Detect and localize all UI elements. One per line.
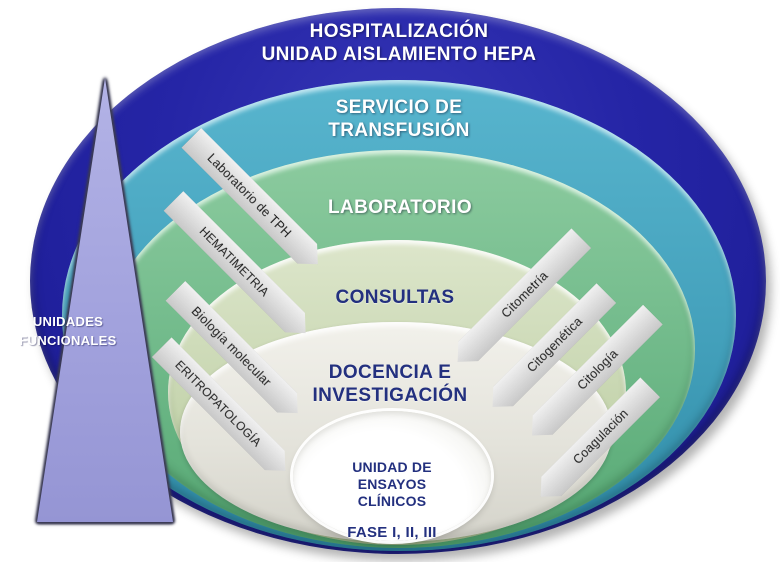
onion-diagram: HOSPITALIZACIÓN UNIDAD AISLAMIENTO HEPA … (0, 0, 780, 562)
label-unidades-line1: UNIDADES (0, 312, 136, 331)
unidades-funcionales-triangle (37, 78, 173, 522)
ring-unidad-ensayos-clinicos (293, 411, 491, 541)
label-unidades-funcionales: UNIDADES FUNCIONALES (0, 312, 136, 350)
label-unidades-line2: FUNCIONALES (0, 331, 136, 350)
triangle-shape (37, 78, 173, 522)
